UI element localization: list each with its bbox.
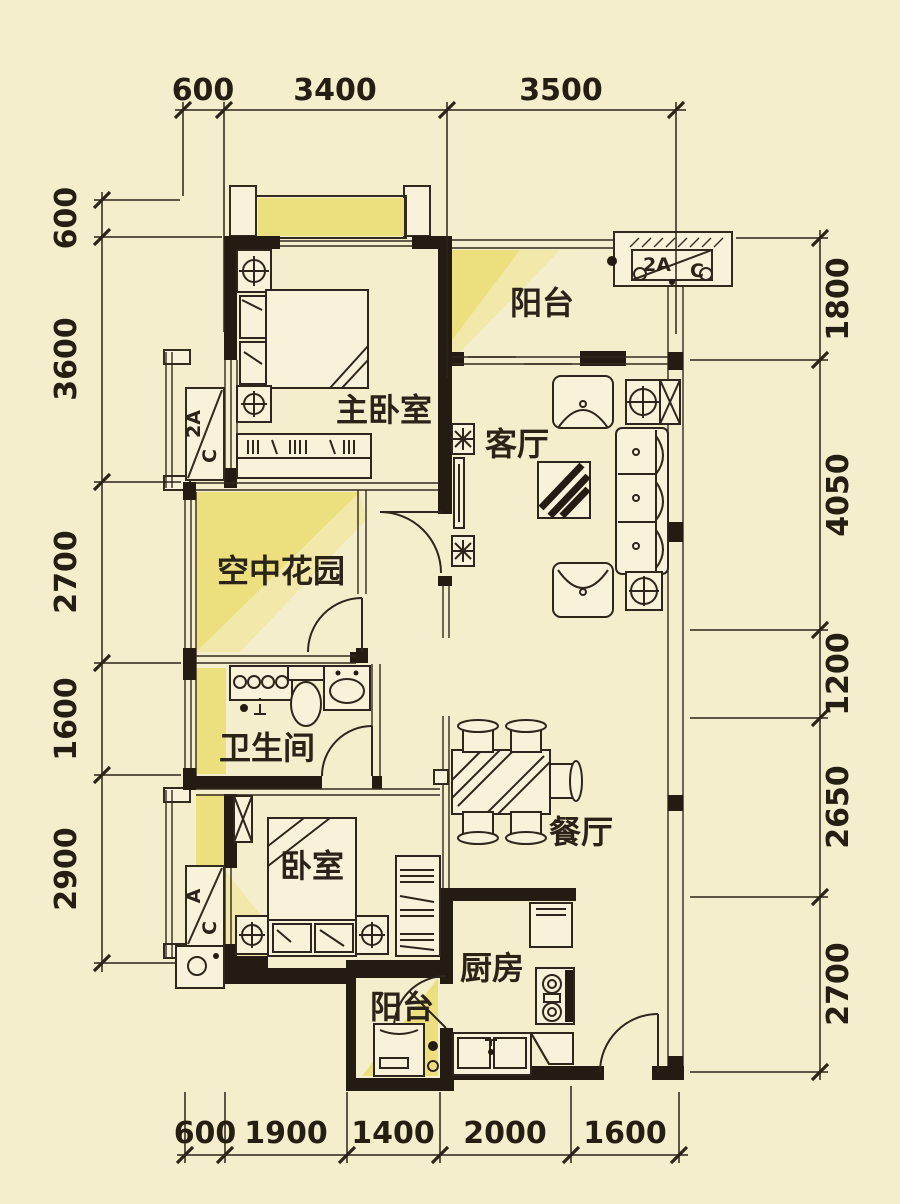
- dining-chair: [458, 720, 498, 752]
- ac-label-c: C: [690, 260, 704, 282]
- dining-chair: [506, 812, 546, 844]
- label-kitchen: 厨房: [460, 949, 524, 987]
- dining-chair: [458, 812, 498, 844]
- ac-label-2a: 2A: [643, 254, 671, 276]
- dim-right-2650: 2650: [821, 765, 856, 849]
- bay-tooth-left: [230, 186, 256, 236]
- washing-machine: [176, 946, 224, 988]
- floor-plan-drawing: 2A C 2A C A C: [0, 0, 900, 1200]
- ac-platform-bedroom-left: A C: [183, 866, 224, 946]
- label-balcony-top: 阳台: [510, 284, 574, 322]
- dim-right-1200: 1200: [821, 632, 856, 716]
- label-bathroom: 卫生间: [219, 729, 315, 767]
- pillow: [315, 924, 353, 952]
- dim-left-1600: 1600: [49, 677, 84, 761]
- dim-left-2900: 2900: [49, 827, 84, 911]
- ac-label-2a: 2A: [183, 410, 205, 438]
- dim-bottom-600: 600: [174, 1116, 237, 1151]
- label-dining-room: 餐厅: [549, 813, 613, 851]
- dining-chair: [506, 720, 546, 752]
- ac-label-a: A: [183, 888, 205, 903]
- dim-top-3500: 3500: [519, 73, 603, 108]
- dining-chair: [550, 761, 582, 801]
- label-balcony-bottom: 阳台: [370, 988, 434, 1026]
- toilet-bowl: [291, 682, 321, 726]
- dim-bottom-2000: 2000: [463, 1116, 547, 1151]
- floor-plan-page: 2A C 2A C A C: [0, 0, 900, 1200]
- dim-left-600: 600: [49, 187, 84, 250]
- dim-right-4050: 4050: [821, 453, 856, 537]
- dim-right-2700: 2700: [821, 942, 856, 1026]
- ac-platform-master-left: 2A C: [183, 388, 224, 480]
- dim-top-600: 600: [172, 73, 235, 108]
- vanity-counter: [230, 666, 292, 700]
- dim-bottom-1600: 1600: [583, 1116, 667, 1151]
- pillow: [240, 296, 266, 338]
- dim-right-1800: 1800: [821, 257, 856, 341]
- ac-platform-top-right: 2A C: [614, 232, 732, 286]
- background: [0, 0, 900, 1200]
- pillow: [273, 924, 311, 952]
- dim-left-2700: 2700: [49, 530, 84, 614]
- ac-label-c: C: [199, 449, 221, 463]
- ac-label-c: C: [199, 921, 221, 935]
- label-bedroom: 卧室: [280, 847, 344, 885]
- sofa: [616, 428, 668, 574]
- label-master-bedroom: 主卧室: [336, 391, 432, 429]
- toilet-tank: [288, 666, 324, 680]
- double-bed: [266, 290, 368, 388]
- label-living-room: 客厅: [485, 425, 549, 463]
- label-sky-garden: 空中花园: [217, 552, 345, 590]
- dim-top-3400: 3400: [293, 73, 377, 108]
- bay-tooth-right: [404, 186, 430, 236]
- dim-left-3600: 3600: [49, 317, 84, 401]
- dim-bottom-1900: 1900: [244, 1116, 328, 1151]
- dim-bottom-1400: 1400: [351, 1116, 435, 1151]
- ceiling-light: [607, 256, 617, 266]
